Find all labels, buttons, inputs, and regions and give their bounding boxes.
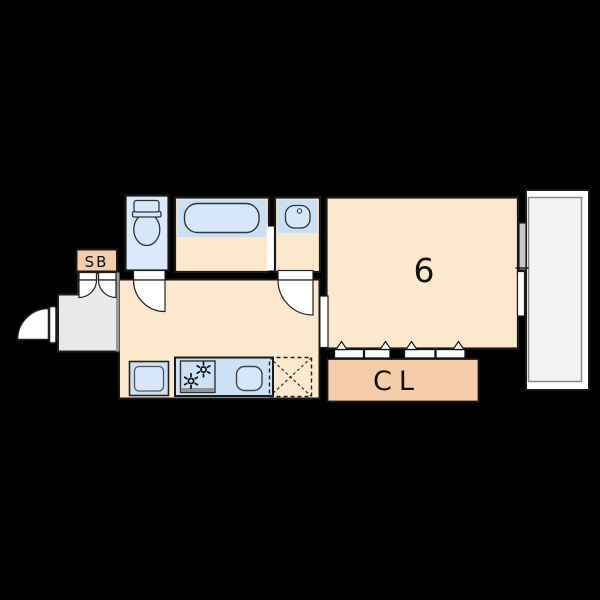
closet-box: CL (328, 359, 479, 402)
balcony (526, 190, 589, 390)
front-door-leaf (50, 307, 57, 344)
toilet-icon (133, 201, 162, 246)
folding-door-panel (365, 350, 391, 359)
door-opening (134, 271, 166, 281)
washbasin-icon (286, 206, 311, 229)
bathroom (175, 198, 277, 273)
window-pane-upper (519, 223, 526, 270)
toilet-room (126, 196, 169, 271)
folding-door-panel (436, 350, 465, 359)
washbasin-faucet (297, 209, 301, 213)
room-size-label: 6 (414, 251, 435, 290)
closet-label: CL (373, 366, 421, 397)
washing-machine-icon (130, 362, 169, 396)
washroom (275, 198, 320, 273)
washbasin-bowl (286, 206, 311, 229)
floor-plan: SB (0, 0, 600, 600)
shoe-box-label: SB (85, 253, 109, 271)
floor-plan-drawing: SB (0, 0, 600, 600)
toilet-bowl (134, 214, 160, 246)
kitchen-sink-icon (237, 367, 263, 391)
toilet-tank (134, 201, 159, 213)
shoe-box-door-leaf-right (99, 273, 117, 281)
kitchen-counter (175, 358, 273, 397)
folding-door-panel (405, 350, 436, 359)
shoe-box-door-leaf-left (79, 273, 97, 281)
washer-inner (135, 367, 164, 392)
stove-icon (181, 361, 216, 393)
balcony-inner (529, 198, 582, 382)
folding-door-panel (335, 350, 364, 359)
door-opening (278, 271, 313, 281)
bathtub-icon (185, 204, 260, 233)
window-pane-lower (518, 272, 525, 317)
shoe-box: SB (77, 250, 118, 272)
stove-front-strip (182, 388, 215, 392)
